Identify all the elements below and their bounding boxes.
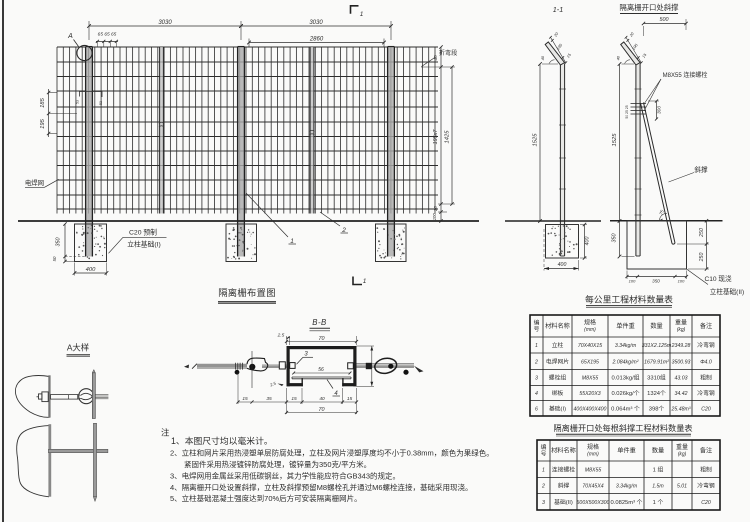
svg-text:350: 350 xyxy=(652,279,660,284)
svg-text:单件重: 单件重 xyxy=(617,447,636,455)
svg-text:数量: 数量 xyxy=(650,322,662,330)
svg-text:基础(II): 基础(II) xyxy=(554,498,573,506)
svg-text:编: 编 xyxy=(534,319,540,327)
svg-text:195x7: 195x7 xyxy=(433,129,439,145)
svg-text:70X45X4: 70X45X4 xyxy=(582,484,603,490)
svg-text:1: 1 xyxy=(535,343,538,349)
svg-text:2860: 2860 xyxy=(309,36,324,42)
svg-text:40: 40 xyxy=(319,396,325,402)
svg-text:规格: 规格 xyxy=(587,443,599,451)
svg-text:(kg): (kg) xyxy=(678,452,687,458)
svg-text:400: 400 xyxy=(86,267,96,273)
svg-text:1425: 1425 xyxy=(444,130,450,144)
svg-text:备注: 备注 xyxy=(700,447,712,455)
svg-text:(kg): (kg) xyxy=(677,327,686,333)
svg-text:3: 3 xyxy=(535,376,538,382)
svg-text:34.42: 34.42 xyxy=(675,391,688,397)
svg-text:300: 300 xyxy=(657,106,663,114)
svg-text:25.48m³: 25.48m³ xyxy=(670,406,690,412)
svg-text:1.5m: 1.5m xyxy=(652,484,664,490)
svg-text:1 个: 1 个 xyxy=(653,499,664,506)
svg-text:4: 4 xyxy=(535,391,538,397)
svg-text:20: 20 xyxy=(433,206,438,212)
svg-text:55X20X3: 55X20X3 xyxy=(579,391,600,397)
svg-text:粗制: 粗制 xyxy=(700,374,712,382)
svg-text:隔离栅布置图: 隔离栅布置图 xyxy=(218,287,276,298)
svg-text:A大样: A大样 xyxy=(67,343,89,353)
svg-text:粗制: 粗制 xyxy=(700,465,712,473)
svg-text:电焊网: 电焊网 xyxy=(25,178,44,187)
svg-text:70: 70 xyxy=(319,336,325,342)
svg-text:5、立柱基础混凝土强度达到70%后方可安装隔离栅网片。: 5、立柱基础混凝土强度达到70%后方可安装隔离栅网片。 xyxy=(170,493,362,503)
svg-text:100: 100 xyxy=(678,279,685,284)
svg-text:2349.28: 2349.28 xyxy=(671,343,691,349)
svg-text:3: 3 xyxy=(542,500,545,506)
svg-text:A: A xyxy=(67,33,73,40)
svg-text:50 25 25: 50 25 25 xyxy=(625,105,629,118)
svg-text:编: 编 xyxy=(541,443,547,451)
svg-text:0.064m³ 个: 0.064m³ 个 xyxy=(611,405,640,412)
svg-text:C20 预制: C20 预制 xyxy=(129,228,157,237)
svg-text:250: 250 xyxy=(699,228,705,238)
svg-text:立柱: 立柱 xyxy=(552,341,564,349)
svg-text:331X2.125m: 331X2.125m xyxy=(642,343,672,349)
svg-text:53: 53 xyxy=(99,101,103,105)
svg-text:隔离栅开口处每根斜撑工程材料数量表: 隔离栅开口处每根斜撑工程材料数量表 xyxy=(553,423,692,433)
svg-text:3.34kg/m: 3.34kg/m xyxy=(616,484,638,490)
svg-text:3、电焊网用金属丝采用低碳钢丝，其力学性能应符合GB343的: 3、电焊网用金属丝采用低碳钢丝，其力学性能应符合GB343的规定。 xyxy=(170,471,400,481)
svg-text:3500.93: 3500.93 xyxy=(672,359,691,365)
svg-text:备注: 备注 xyxy=(700,322,712,330)
svg-text:15: 15 xyxy=(291,396,297,402)
svg-text:65 65 65: 65 65 65 xyxy=(98,32,117,38)
svg-text:2.5: 2.5 xyxy=(277,333,285,339)
svg-text:1525: 1525 xyxy=(612,133,618,147)
svg-text:100: 100 xyxy=(629,279,636,284)
svg-text:连接螺栓: 连接螺栓 xyxy=(552,465,575,473)
svg-text:43.03: 43.03 xyxy=(675,376,688,382)
svg-text:注: 注 xyxy=(161,428,170,438)
svg-text:Φ4.0: Φ4.0 xyxy=(700,359,712,365)
svg-text:15: 15 xyxy=(242,396,248,402)
svg-text:50: 50 xyxy=(52,256,57,261)
svg-text:立柱基础(II): 立柱基础(II) xyxy=(710,287,744,296)
svg-text:冷弯钢: 冷弯钢 xyxy=(697,482,715,490)
svg-text:基础(I): 基础(I) xyxy=(549,404,566,412)
svg-text:185: 185 xyxy=(40,97,46,107)
svg-text:1 组: 1 组 xyxy=(653,465,664,473)
svg-text:1、本图尺寸均以毫米计。: 1、本图尺寸均以毫米计。 xyxy=(171,435,273,446)
svg-text:70: 70 xyxy=(319,407,325,413)
svg-text:3310组: 3310组 xyxy=(647,374,666,382)
svg-text:隔离栅开口处斜撑: 隔离栅开口处斜撑 xyxy=(619,3,679,12)
svg-text:3.34kg/m: 3.34kg/m xyxy=(615,343,637,349)
svg-text:B-B: B-B xyxy=(312,318,327,327)
svg-text:400: 400 xyxy=(558,262,567,268)
svg-text:398个: 398个 xyxy=(649,405,665,412)
svg-text:斜撑: 斜撑 xyxy=(694,165,708,174)
svg-text:材料名称: 材料名称 xyxy=(545,322,570,330)
svg-text:C20: C20 xyxy=(701,406,711,412)
svg-text:立柱基础(I): 立柱基础(I) xyxy=(127,240,161,249)
svg-text:100: 100 xyxy=(432,213,437,221)
svg-text:4、隔离栅开口处设置斜撑，立柱及斜撑预留M8螺栓孔并通过M6: 4、隔离栅开口处设置斜撑，立柱及斜撑预留M8螺栓孔并通过M6螺栓连接，基础采用现… xyxy=(170,482,473,492)
svg-text:冷弯钢: 冷弯钢 xyxy=(697,389,715,397)
svg-text:(mm): (mm) xyxy=(587,452,599,458)
svg-text:冷弯钢: 冷弯钢 xyxy=(697,341,715,349)
svg-text:35: 35 xyxy=(266,396,272,402)
svg-text:紧固件采用热浸镀锌防腐处理，镀锌量为350克/平方米。: 紧固件采用热浸镀锌防腐处理，镀锌量为350克/平方米。 xyxy=(184,459,371,469)
svg-text:M8X55: M8X55 xyxy=(585,467,602,473)
svg-text:2、立柱和网片采用热浸塑单层防腐处理，立柱及网片浸塑厚度均不: 2、立柱和网片采用热浸塑单层防腐处理，立柱及网片浸塑厚度均不小于0.38mm，颜… xyxy=(170,448,494,458)
svg-text:53: 53 xyxy=(76,100,80,104)
svg-text:500X500X300: 500X500X300 xyxy=(577,500,610,506)
svg-text:重量: 重量 xyxy=(676,443,688,451)
svg-text:数量: 数量 xyxy=(652,447,664,455)
svg-text:1324个: 1324个 xyxy=(647,390,666,397)
svg-text:单件重: 单件重 xyxy=(616,322,635,330)
svg-text:折弯段: 折弯段 xyxy=(439,49,458,57)
svg-text:2.084kg/m²: 2.084kg/m² xyxy=(612,359,639,365)
svg-text:1: 1 xyxy=(542,467,545,473)
svg-text:1: 1 xyxy=(363,278,367,285)
svg-text:3030: 3030 xyxy=(158,20,172,26)
svg-text:2: 2 xyxy=(534,359,538,365)
svg-text:6: 6 xyxy=(535,406,538,412)
svg-text:40: 40 xyxy=(540,55,545,60)
svg-text:350: 350 xyxy=(56,238,62,247)
svg-text:螺栓组: 螺栓组 xyxy=(549,374,567,382)
svg-text:400X400X400: 400X400X400 xyxy=(574,406,607,412)
svg-text:65X195: 65X195 xyxy=(581,359,599,365)
svg-text:M8X55: M8X55 xyxy=(582,376,599,382)
svg-text:3030: 3030 xyxy=(309,20,323,26)
svg-text:500: 500 xyxy=(660,17,669,23)
svg-text:1525: 1525 xyxy=(532,133,538,147)
svg-text:0.026kg/个: 0.026kg/个 xyxy=(611,390,639,397)
svg-text:0.013kg/组: 0.013kg/组 xyxy=(611,374,639,382)
svg-text:C10 现浇: C10 现浇 xyxy=(704,274,732,283)
svg-text:M8X55 连接螺栓: M8X55 连接螺栓 xyxy=(663,71,708,79)
svg-text:号: 号 xyxy=(541,451,547,458)
svg-text:350: 350 xyxy=(611,234,617,243)
svg-text:195: 195 xyxy=(40,118,46,128)
svg-text:15: 15 xyxy=(347,396,353,402)
svg-text:每公里工程材料数量表: 每公里工程材料数量表 xyxy=(585,294,673,305)
svg-text:56: 56 xyxy=(318,367,324,373)
svg-text:250: 250 xyxy=(699,253,705,263)
svg-text:重量: 重量 xyxy=(675,319,687,327)
svg-text:0.0825m³ 个: 0.0825m³ 个 xyxy=(611,499,643,506)
svg-text:(mm): (mm) xyxy=(584,327,596,333)
svg-text:5.01: 5.01 xyxy=(677,484,687,490)
svg-text:材料名称: 材料名称 xyxy=(551,447,576,455)
svg-text:电焊网片: 电焊网片 xyxy=(546,357,569,365)
svg-text:70X40X15: 70X40X15 xyxy=(578,343,602,349)
svg-text:1: 1 xyxy=(360,11,364,18)
svg-text:1679.91m²: 1679.91m² xyxy=(644,359,669,365)
svg-text:2: 2 xyxy=(541,484,545,490)
svg-text:C20: C20 xyxy=(701,500,711,506)
svg-text:1-1: 1-1 xyxy=(553,5,563,14)
svg-text:400: 400 xyxy=(585,237,591,246)
svg-text:号: 号 xyxy=(534,326,540,333)
svg-text:规格: 规格 xyxy=(584,319,596,327)
svg-text:斜撑: 斜撑 xyxy=(558,482,570,490)
svg-text:40: 40 xyxy=(616,55,621,60)
svg-text:绑板: 绑板 xyxy=(552,389,564,397)
